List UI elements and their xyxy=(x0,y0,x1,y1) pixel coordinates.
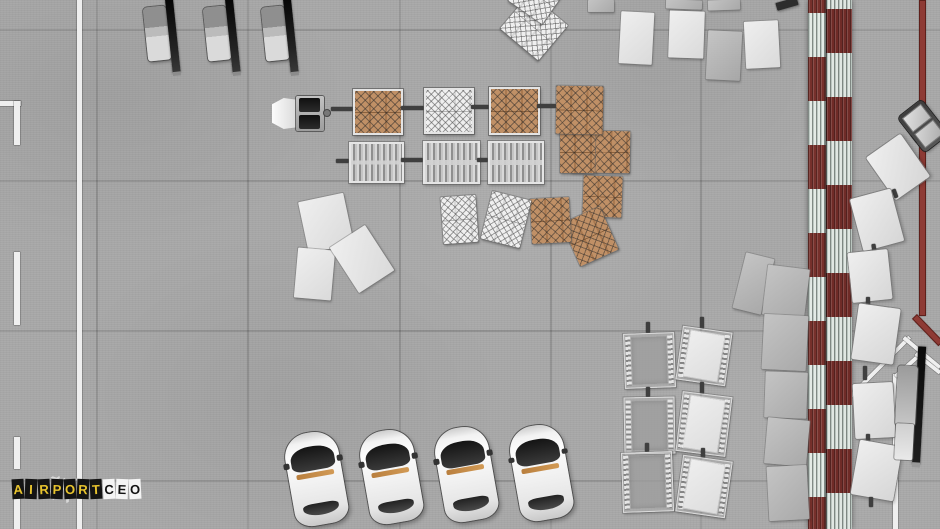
cart-hitch xyxy=(537,104,556,108)
car-rear xyxy=(377,497,415,515)
bll-body xyxy=(895,365,918,426)
cargo-pallet-netted xyxy=(560,131,597,173)
car-rear xyxy=(527,494,565,513)
car-m2 xyxy=(412,452,418,458)
cargo-pallet xyxy=(764,371,808,418)
belt-loader-vehicle[interactable] xyxy=(202,0,242,77)
cart-hitch xyxy=(401,158,423,162)
net-ov xyxy=(556,86,604,135)
game-logo: ✈ AIRPORT CEO xyxy=(12,479,141,499)
belt-loader-vehicle[interactable] xyxy=(142,0,182,77)
cf-r xyxy=(668,400,674,451)
cargo-pallet xyxy=(767,465,810,521)
cargo-pallet xyxy=(619,11,655,65)
baggage-cart[interactable] xyxy=(847,249,892,303)
apron-marking-line xyxy=(14,437,20,469)
tug-hook xyxy=(324,110,330,116)
cargo-pallet xyxy=(762,265,810,320)
cf-inner xyxy=(632,401,668,451)
tug-s1 xyxy=(299,98,320,112)
net-ov xyxy=(560,131,597,173)
logo-word-airport: AIRPORT xyxy=(12,479,102,499)
zone-border-line xyxy=(919,0,926,316)
car-m1 xyxy=(283,463,289,469)
baggage-cart[interactable] xyxy=(851,303,900,364)
net-ov xyxy=(426,90,472,132)
baggage-cart[interactable] xyxy=(675,326,732,386)
cart-hitch xyxy=(477,158,488,162)
logo-letter: R xyxy=(77,479,90,499)
bll-front xyxy=(894,423,914,460)
net-ov xyxy=(440,195,478,244)
cargo-pallet xyxy=(708,0,740,11)
belt-loader-vehicle[interactable] xyxy=(892,345,928,468)
logo-word-ceo: CEO xyxy=(103,479,141,499)
net-ov xyxy=(596,131,631,174)
tug-front xyxy=(272,98,298,129)
baggage-cart-empty[interactable] xyxy=(423,141,480,184)
cargo-pallet xyxy=(666,0,702,10)
cart-hitch xyxy=(401,106,424,110)
car-m2 xyxy=(561,448,567,455)
cargo-pallet-netted xyxy=(596,131,631,174)
car-m2 xyxy=(486,449,492,455)
cf-r xyxy=(667,335,674,384)
logo-letter: R xyxy=(37,479,50,500)
cargo-pallet-netted xyxy=(556,86,604,135)
logo-letter: O xyxy=(128,479,141,500)
baggage-cart[interactable] xyxy=(676,391,733,457)
zone-border-line xyxy=(912,314,940,346)
apron-marking-line xyxy=(14,101,20,145)
cargo-pallet xyxy=(588,0,614,12)
cargo-pallet-netted xyxy=(481,191,532,248)
tug-s2 xyxy=(299,115,320,129)
cargo-pallet xyxy=(294,247,335,300)
cart-hitch xyxy=(336,159,349,163)
car-vehicle[interactable] xyxy=(506,421,576,524)
car-m2 xyxy=(337,454,343,460)
cf-l xyxy=(626,400,632,451)
cart-hitch xyxy=(700,317,704,329)
logo-letter: P xyxy=(51,479,64,499)
baggage-cart[interactable] xyxy=(853,382,896,439)
car-rear xyxy=(302,499,340,517)
cargo-pallet xyxy=(775,0,798,11)
car-m1 xyxy=(358,461,364,467)
car-m1 xyxy=(433,459,439,465)
net-ov xyxy=(355,91,401,133)
car-vehicle[interactable] xyxy=(356,426,425,527)
car-vehicle[interactable] xyxy=(431,423,501,525)
baggage-cart[interactable] xyxy=(624,397,676,455)
logo-letter: C xyxy=(102,479,115,500)
cart-hitch xyxy=(645,443,649,452)
cf-inner xyxy=(631,336,668,384)
cargo-pallet xyxy=(668,10,705,58)
cf-inner xyxy=(683,330,724,381)
baggage-cart[interactable] xyxy=(675,455,732,518)
logo-letter: E xyxy=(116,479,129,499)
cart-hitch xyxy=(331,107,353,111)
cart-hitch xyxy=(646,322,650,333)
baggage-tug-vehicle[interactable] xyxy=(272,95,330,132)
cart-hitch xyxy=(869,497,873,507)
cart-hitch xyxy=(863,366,867,380)
logo-letter: T xyxy=(89,479,102,500)
apron-objects-layer xyxy=(0,0,940,529)
baggage-cart-loaded[interactable] xyxy=(489,87,540,135)
apron-marking-line xyxy=(77,0,82,529)
baggage-cart-loaded[interactable] xyxy=(353,89,403,135)
belt-loader-vehicle[interactable] xyxy=(260,0,300,77)
cart-hitch xyxy=(471,105,489,109)
net-ov xyxy=(481,191,532,248)
cargo-pallet xyxy=(744,20,780,69)
cargo-pallet-netted xyxy=(440,195,478,244)
cart-hitch xyxy=(646,387,650,397)
wall-l xyxy=(808,0,826,529)
cart-hitch xyxy=(700,382,704,394)
baggage-cart[interactable] xyxy=(621,451,674,513)
baggage-cart-empty[interactable] xyxy=(488,141,544,184)
net-ov xyxy=(530,197,571,244)
logo-letter: I xyxy=(25,479,38,499)
baggage-cart[interactable] xyxy=(623,332,676,389)
net-ov xyxy=(491,89,538,133)
cf-r xyxy=(665,454,672,508)
car-vehicle[interactable] xyxy=(281,428,350,529)
apron-marking-line xyxy=(14,252,20,325)
cargo-pallet xyxy=(764,417,810,466)
car-rear xyxy=(452,495,490,513)
cargo-pallet xyxy=(706,30,743,81)
cargo-pallet-netted xyxy=(530,197,571,244)
logo-letter: A xyxy=(11,479,24,500)
logo-letter: O xyxy=(63,479,76,500)
cargo-pallet xyxy=(762,314,809,371)
airport-apron-view: ✈ AIRPORT CEO xyxy=(0,0,940,529)
building-roof-edge xyxy=(808,0,852,529)
baggage-cart-empty[interactable] xyxy=(349,142,404,183)
car-m1 xyxy=(508,457,514,464)
baggage-cart-loaded[interactable] xyxy=(424,88,474,134)
cf-inner xyxy=(629,455,666,508)
apron-marking-line xyxy=(14,498,20,529)
